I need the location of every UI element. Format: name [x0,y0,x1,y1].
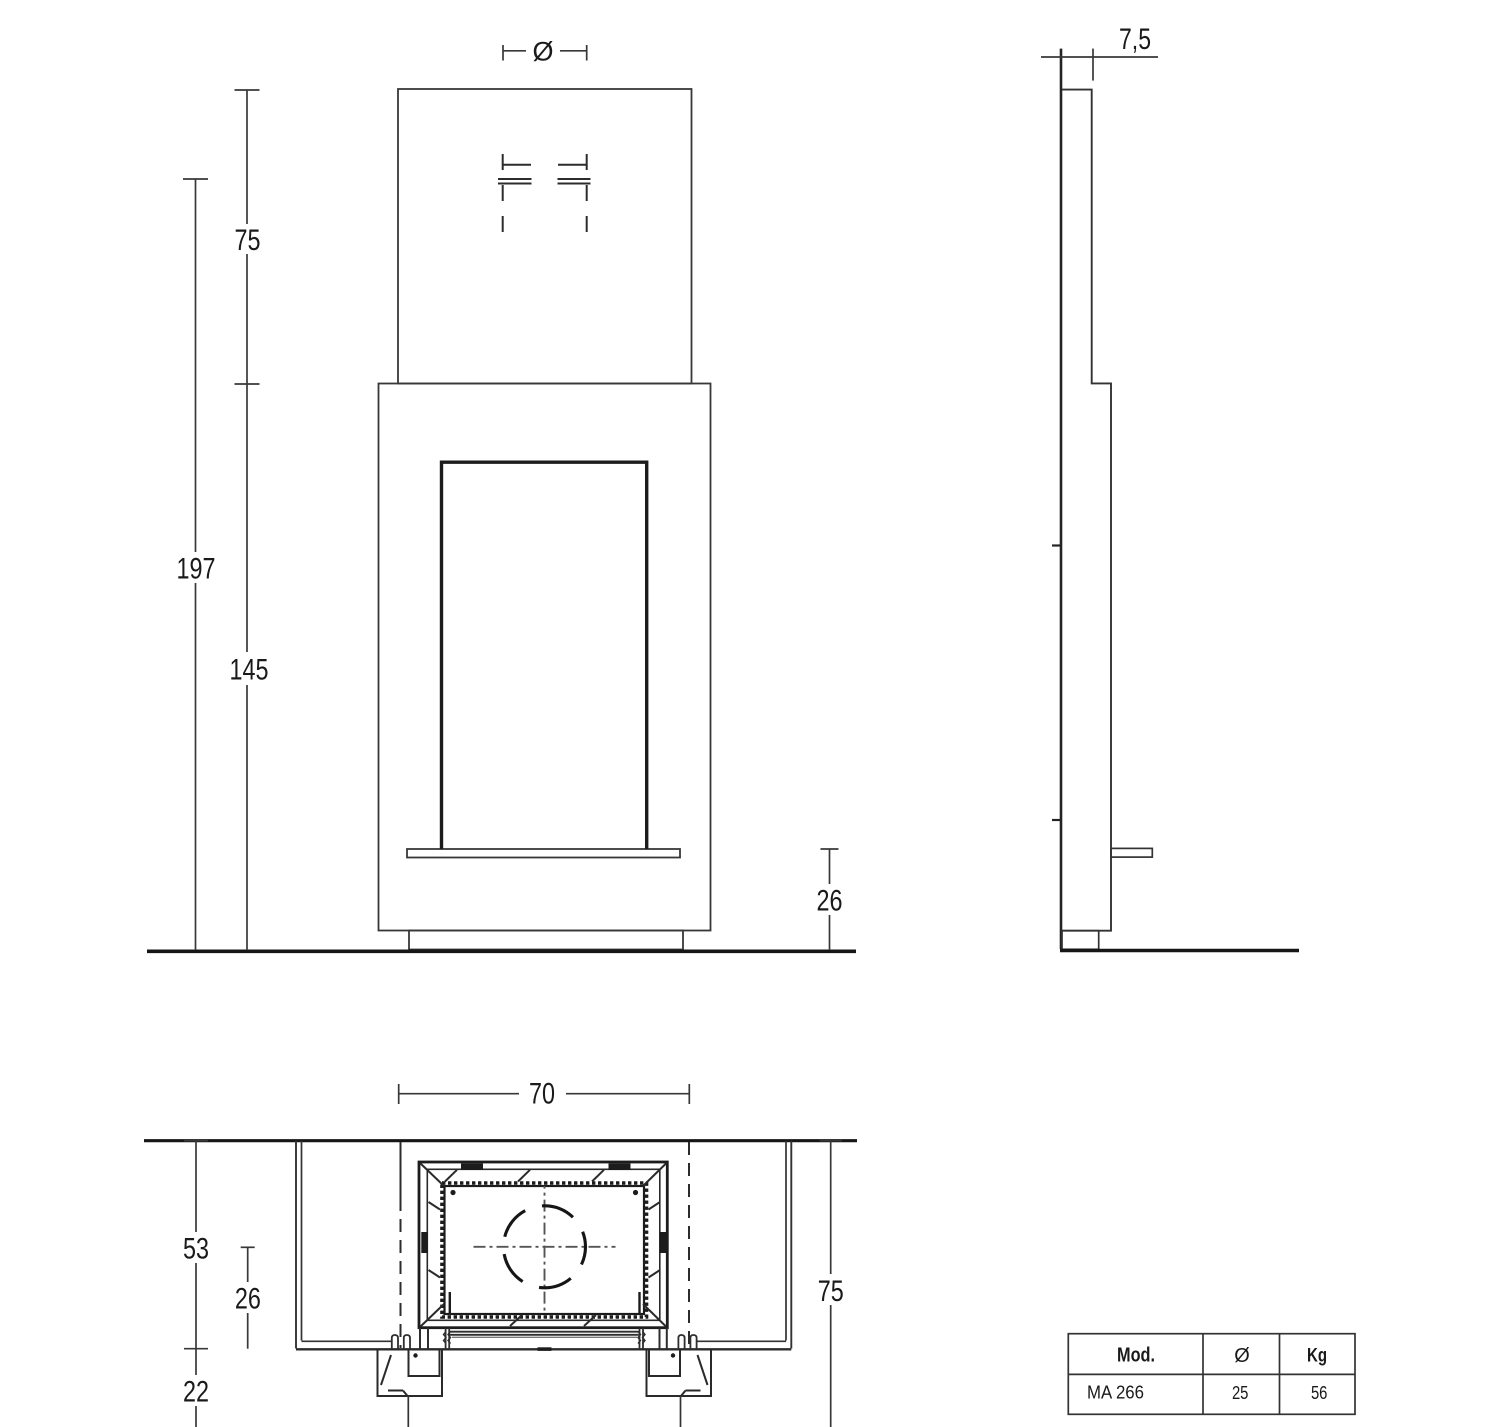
svg-text:75: 75 [818,1275,844,1308]
svg-text:Mod.: Mod. [1117,1344,1155,1366]
svg-text:MA 266: MA 266 [1087,1383,1144,1403]
svg-text:26: 26 [817,885,843,918]
svg-text:53: 53 [183,1233,209,1266]
svg-text:145: 145 [230,654,269,687]
svg-text:26: 26 [235,1283,261,1316]
svg-text:197: 197 [177,553,216,586]
svg-text:7,5: 7,5 [1119,23,1151,56]
svg-text:75: 75 [235,224,261,257]
svg-text:25: 25 [1232,1383,1249,1403]
svg-text:70: 70 [529,1078,555,1111]
svg-text:Ø: Ø [532,37,553,67]
svg-text:Ø: Ø [1234,1345,1250,1367]
svg-text:56: 56 [1311,1383,1328,1403]
svg-text:22: 22 [183,1376,209,1409]
svg-text:Kg: Kg [1307,1345,1327,1366]
